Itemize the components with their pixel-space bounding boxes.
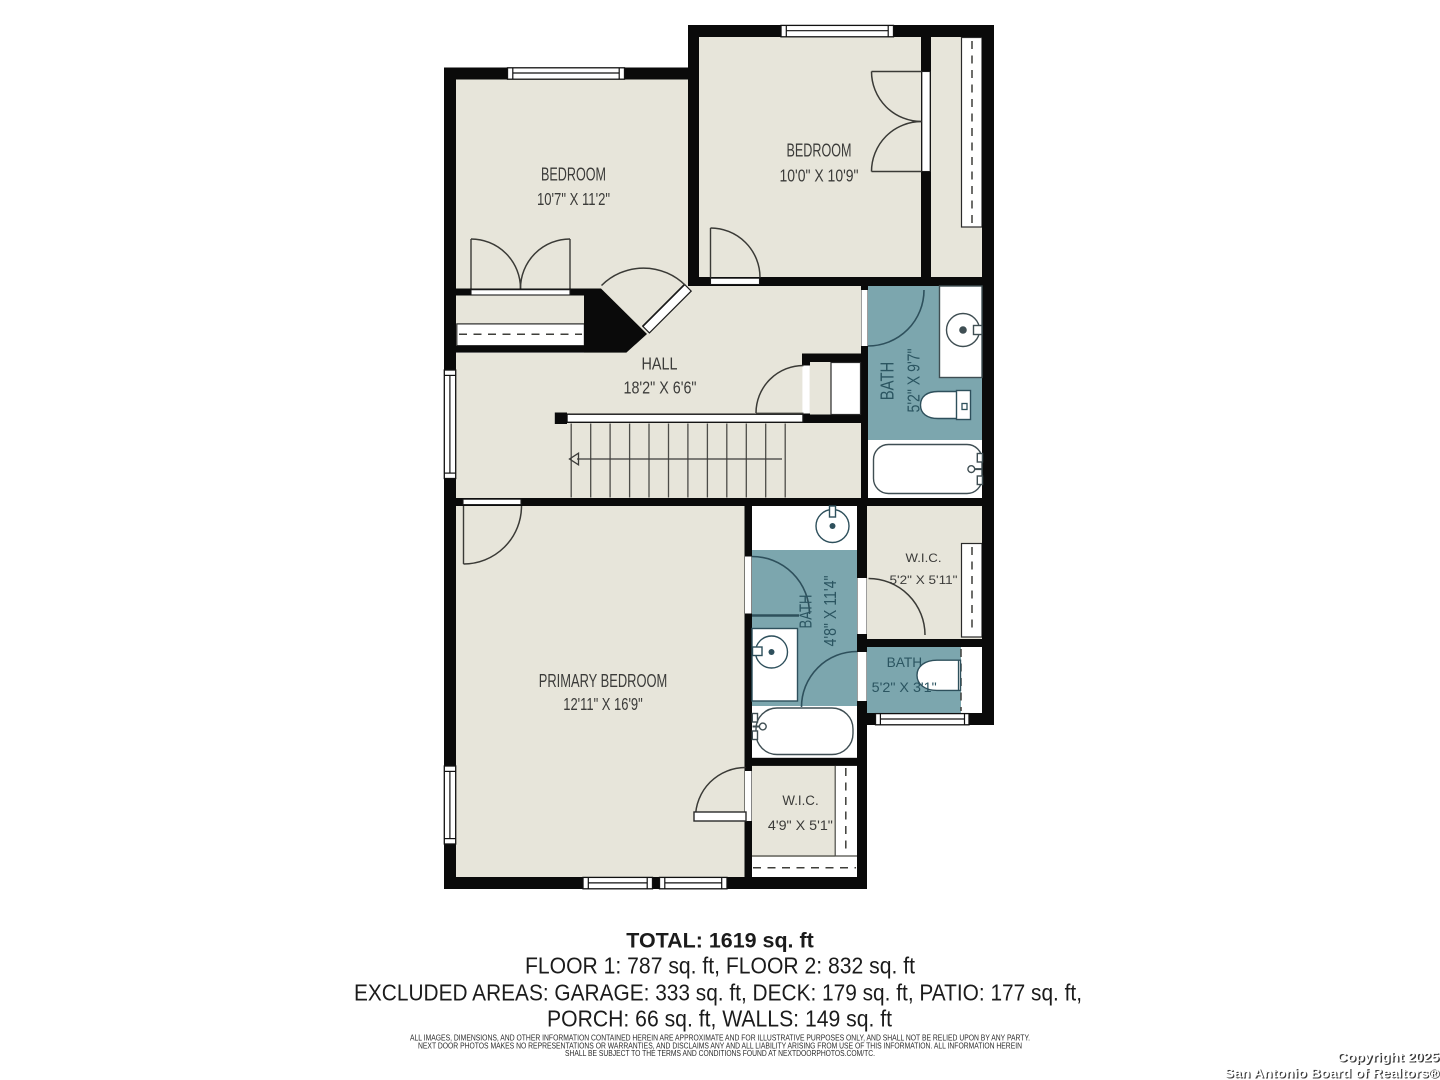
svg-text:HALL: HALL: [642, 354, 678, 374]
svg-text:BATH: BATH: [887, 654, 923, 670]
svg-text:4'9" X 5'1": 4'9" X 5'1": [768, 818, 833, 833]
svg-text:PORCH: 66 sq. ft, WALLS: 149 s: PORCH: 66 sq. ft, WALLS: 149 sq. ft: [547, 1005, 893, 1031]
svg-text:5'2" X 3'1": 5'2" X 3'1": [872, 679, 937, 695]
svg-text:FLOOR 1: 787 sq. ft, FLOOR 2:: FLOOR 1: 787 sq. ft, FLOOR 2: 832 sq. ft: [525, 953, 916, 979]
svg-text:BEDROOM: BEDROOM: [787, 141, 852, 161]
svg-text:TOTAL: 1619 sq. ft: TOTAL: 1619 sq. ft: [626, 928, 814, 952]
svg-text:18'2" X 6'6": 18'2" X 6'6": [624, 378, 697, 398]
svg-text:EXCLUDED AREAS: GARAGE: 333 sq: EXCLUDED AREAS: GARAGE: 333 sq. ft, DECK…: [354, 980, 1082, 1006]
svg-text:4'8" X 11'4": 4'8" X 11'4": [820, 576, 840, 647]
svg-text:Copyright 2025: Copyright 2025: [1337, 1049, 1439, 1064]
svg-text:W.I.C.: W.I.C.: [906, 553, 942, 565]
svg-text:10'7" X 11'2": 10'7" X 11'2": [537, 189, 610, 209]
svg-text:SHALL BE SUBJECT TO THE TERMS: SHALL BE SUBJECT TO THE TERMS AND CONDIT…: [565, 1049, 875, 1058]
svg-text:BATH: BATH: [878, 362, 898, 401]
svg-text:5'2" X 9'7": 5'2" X 9'7": [904, 349, 924, 413]
svg-text:W.I.C.: W.I.C.: [782, 793, 818, 808]
svg-text:BATH: BATH: [796, 595, 816, 629]
svg-text:BEDROOM: BEDROOM: [541, 165, 606, 185]
svg-text:5'2" X 5'11": 5'2" X 5'11": [890, 575, 958, 587]
svg-text:PRIMARY BEDROOM: PRIMARY BEDROOM: [539, 671, 668, 691]
svg-text:12'11" X 16'9": 12'11" X 16'9": [563, 694, 643, 714]
svg-text:10'0" X 10'9": 10'0" X 10'9": [780, 166, 859, 186]
svg-text:San Antonio Board of Realtors®: San Antonio Board of Realtors®: [1225, 1065, 1440, 1080]
